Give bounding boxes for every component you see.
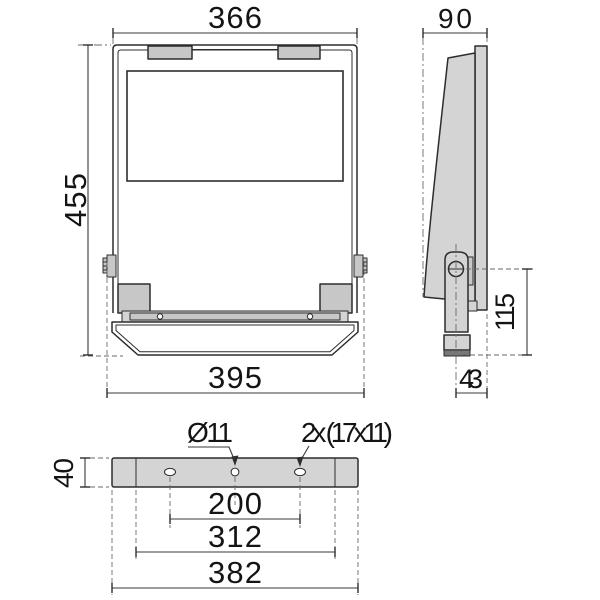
slot-hole-right [295, 468, 306, 475]
front-visor [112, 322, 358, 355]
slot-hole-left [165, 468, 176, 475]
rail-screw-right [307, 314, 312, 319]
technical-drawing-page: 366 455 395 [0, 0, 600, 600]
dim-label-front-height: 455 [58, 173, 93, 227]
dim-label-side-pivot-to-base: 115 [490, 293, 520, 331]
center-hole [231, 468, 239, 476]
dimension-bar-height: 40 [48, 458, 109, 488]
rail-screw-left [157, 314, 162, 319]
dim-label-bar-height: 40 [48, 458, 79, 488]
side-view: 90 115 43 [423, 3, 533, 399]
floodlight-dimension-drawing: 366 455 395 [0, 0, 600, 600]
callout-label-center-hole: Ø11 [187, 417, 233, 448]
bracket-end-right [320, 284, 352, 313]
callout-label-slot-holes: 2x (17x11) [301, 417, 393, 448]
front-view: 366 455 395 [58, 0, 367, 398]
top-clip-left [148, 46, 192, 59]
side-latch-left [103, 255, 116, 277]
dim-label-front-width-top: 366 [208, 0, 262, 35]
dimension-front-width-top: 366 [113, 0, 357, 44]
bottom-view: Ø11 2x (17x11) 40 200 [48, 417, 393, 595]
side-latch-right [354, 255, 367, 277]
rear-plate-step [468, 301, 477, 311]
gear-tray-rail [122, 311, 348, 322]
dim-label-front-width-bottom: 395 [208, 360, 262, 395]
dim-label-overall-span: 382 [208, 555, 262, 590]
dim-label-side-base-depth: 43 [459, 364, 483, 394]
dim-label-inner-span: 312 [208, 519, 262, 554]
label-window [127, 71, 343, 181]
dim-label-side-depth: 90 [438, 3, 472, 34]
rear-plate [475, 46, 487, 310]
dim-label-hole-spacing: 200 [208, 486, 262, 521]
top-clip-right [278, 46, 320, 59]
bracket-end-left [118, 284, 150, 313]
mounting-foot [444, 335, 470, 350]
